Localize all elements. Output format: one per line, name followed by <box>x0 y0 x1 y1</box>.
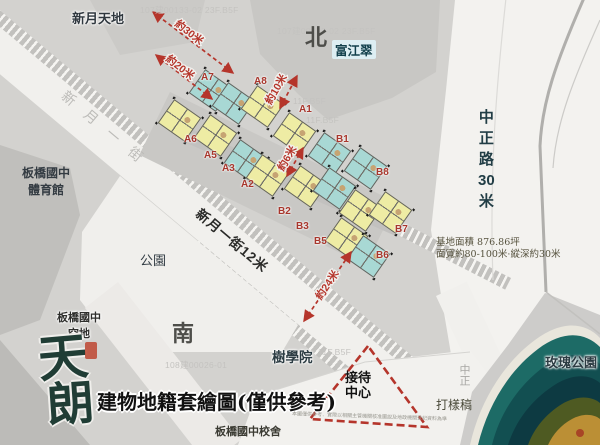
unit-label-b3: B3 <box>296 221 309 232</box>
street-name-faint-vertical: 中正 <box>456 364 472 386</box>
proof-draft-label: 打樣稿 <box>436 396 472 413</box>
place-xinyue-tiandi: 新月天地 <box>72 8 124 27</box>
unit-label-b5: B5 <box>314 236 327 247</box>
unit-label-a7: A7 <box>201 72 214 83</box>
compass-north: 北 <box>305 20 327 52</box>
measure-label-6m: 約6米 <box>275 143 300 173</box>
measure-label-20m: 約20米 <box>163 52 197 83</box>
road-edge-curve <box>553 20 600 168</box>
cadastral-number: 108建00026-01 <box>165 359 227 371</box>
unit-label-b1: B1 <box>336 134 349 145</box>
unit-label-a8: A8 <box>254 76 267 87</box>
measure-label-24m: 約24米 <box>313 267 342 302</box>
place-gym: 板橋國中 體育館 <box>8 164 84 198</box>
street-name-zhongzheng: 中 正 路 30 米 <box>478 110 495 210</box>
unit-label-a1: A1 <box>299 104 312 115</box>
unit-label-a5: A5 <box>204 150 217 161</box>
site-dimensions: 面寬約80-100米·縱深約30米 <box>436 249 561 261</box>
unit-label-b7: B7 <box>395 224 408 235</box>
unit-label-b8: B8 <box>376 167 389 178</box>
unit-label-b2: B2 <box>278 206 291 217</box>
cadastral-number: 11F.B5F <box>306 115 339 125</box>
site-info: 基地面積 876.86坪 面寬約80-100米·縱深約30米 <box>436 237 561 261</box>
measure-label-30m: 約30米 <box>172 17 206 48</box>
place-tree-academy: 樹學院 <box>272 346 313 366</box>
compass-south: 南 <box>172 316 194 348</box>
place-park: 公園 <box>140 250 166 269</box>
site-area: 基地面積 876.86坪 <box>436 237 561 249</box>
cadastral-number: 107建00133-02 23F.B5F <box>140 4 239 16</box>
seal-stamp-icon <box>85 342 97 359</box>
place-school-building: 板橋國中校舍 <box>215 423 281 439</box>
cadastral-number: 11F.B5F <box>318 347 351 357</box>
place-fujiangcui: 富江翠 <box>332 40 376 59</box>
unit-label-a6: A6 <box>184 134 197 145</box>
mountain-contour-graphic <box>470 326 600 445</box>
unit-label-a3: A3 <box>222 163 235 174</box>
brand-logo-char2: 朗 <box>45 379 95 429</box>
unit-label-a2: A2 <box>241 179 254 190</box>
place-rose-park: 玫瑰公園 <box>545 352 597 371</box>
unit-label-b6: B6 <box>376 250 389 261</box>
reception-center-label: 接待 中心 <box>336 370 380 400</box>
cadastral-map: 約30米 約20米 約10米 約6米 約24米 107建00133-02 23F… <box>0 0 600 445</box>
